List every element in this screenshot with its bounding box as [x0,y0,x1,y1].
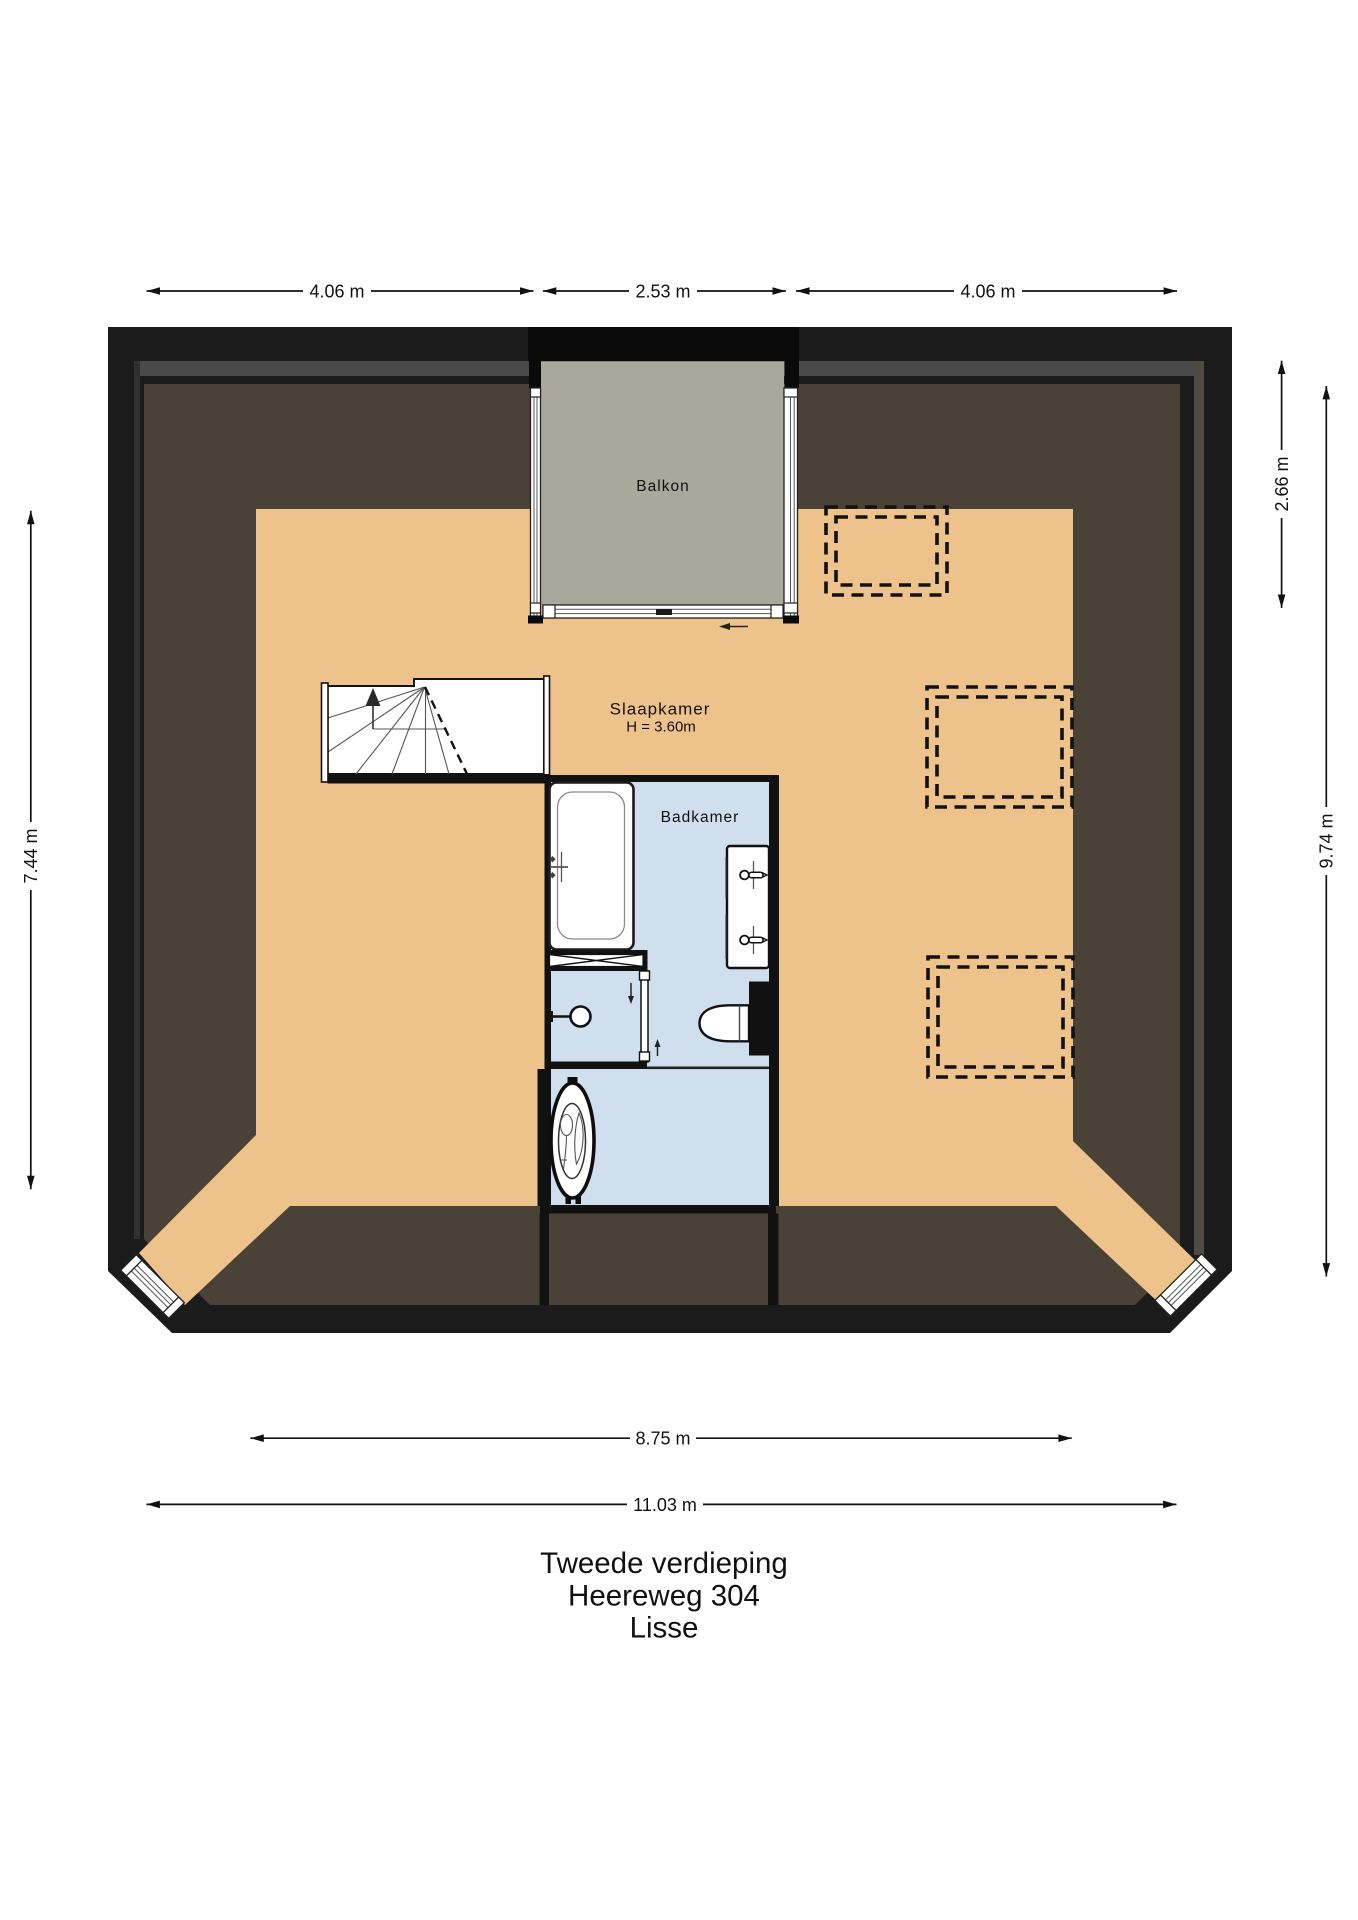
svg-text:H = 3.60m: H = 3.60m [626,719,696,736]
svg-text:Badkamer: Badkamer [661,809,740,826]
svg-text:Balkon: Balkon [636,478,689,495]
svg-text:4.06 m: 4.06 m [960,282,1015,302]
svg-text:2.53 m: 2.53 m [635,282,690,302]
svg-text:Lisse: Lisse [630,1612,699,1645]
svg-text:Heereweg 304: Heereweg 304 [568,1579,760,1612]
svg-text:4.06 m: 4.06 m [309,282,364,302]
svg-text:2.66 m: 2.66 m [1272,456,1292,511]
svg-text:7.44 m: 7.44 m [21,828,41,883]
svg-text:11.03 m: 11.03 m [633,1495,697,1515]
svg-text:Slaapkamer: Slaapkamer [610,700,711,719]
svg-text:8.75 m: 8.75 m [635,1429,690,1449]
svg-text:9.74 m: 9.74 m [1317,813,1337,868]
svg-text:Tweede verdieping: Tweede verdieping [540,1547,788,1580]
